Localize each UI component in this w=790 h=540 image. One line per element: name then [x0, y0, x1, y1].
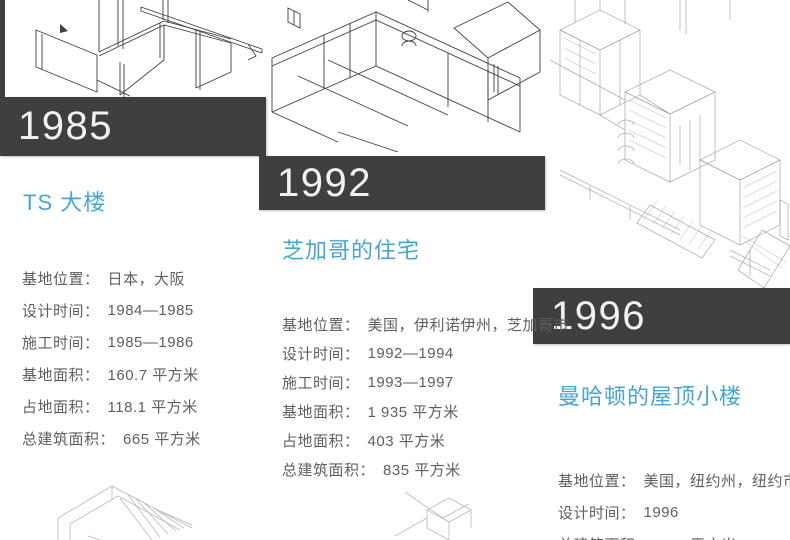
detail-label: 设计时间: [282, 343, 344, 364]
detail-label: 基地位置: [282, 314, 344, 335]
detail-value: 160.7 平方米: [108, 364, 199, 385]
detail-value: 403 平方米: [368, 430, 446, 451]
year-label: 1992: [259, 156, 545, 210]
detail-label: 设计时间: [22, 300, 84, 321]
detail-row: 设计时间：1984—1985: [22, 294, 201, 326]
detail-colon: ：: [344, 314, 360, 335]
detail-row: 设计时间：1992—1994: [282, 339, 569, 368]
detail-row: 施工时间：1985—1986: [22, 326, 201, 358]
detail-colon: ：: [84, 300, 100, 321]
detail-value: 665 平方米: [123, 428, 201, 449]
project-title-ts-building: TS 大楼: [23, 185, 106, 217]
ts-building-axonometric-drawing: [0, 0, 270, 97]
partial-house-axonometric-drawing: [365, 488, 490, 540]
partial-roof-axonometric-drawing: [40, 480, 210, 540]
detail-row: 设计时间：1996: [558, 496, 790, 528]
detail-colon: ：: [344, 430, 360, 451]
book-page: 1985 1992 1996 TS 大楼 芝加哥的住宅 曼哈顿的屋顶小楼 基地位…: [0, 0, 790, 540]
detail-label: 施工时间: [282, 372, 344, 393]
project-title-manhattan-rooftop: 曼哈顿的屋顶小楼: [558, 379, 742, 411]
detail-colon: ：: [620, 502, 636, 523]
detail-label: 总建筑面积: [282, 459, 360, 480]
year-banner-1992: 1992: [259, 156, 545, 210]
detail-value: 1984—1985: [108, 302, 194, 319]
detail-value: 美国，伊利诺伊州，芝加哥市: [368, 314, 570, 335]
detail-value: 1992—1994: [368, 345, 454, 362]
detail-value: 日本，大阪: [108, 268, 186, 289]
detail-colon: ：: [360, 459, 376, 480]
detail-value: 315 平方米: [659, 534, 737, 540]
detail-colon: ：: [84, 268, 100, 289]
chicago-house-axonometric-drawing: [258, 0, 542, 152]
detail-label: 占地面积: [282, 430, 344, 451]
detail-row: 占地面积：403 平方米: [282, 426, 569, 455]
detail-label: 基地面积: [282, 401, 344, 422]
detail-value: 1985—1986: [108, 334, 194, 351]
detail-label: 设计时间: [558, 502, 620, 523]
page-left-dark-edge: [0, 0, 5, 99]
detail-colon: ：: [636, 534, 652, 540]
detail-colon: ：: [84, 396, 100, 417]
project-details-1996: 基地位置：美国，纽约州，纽约市 设计时间：1996 总建筑面积：315 平方米: [558, 464, 790, 540]
detail-label: 占地面积: [22, 396, 84, 417]
detail-colon: ：: [100, 428, 116, 449]
manhattan-rooftop-axonometric-drawing: [530, 0, 790, 288]
detail-row: 基地位置：美国，纽约州，纽约市: [558, 464, 790, 496]
detail-colon: ：: [344, 372, 360, 393]
detail-row: 总建筑面积：835 平方米: [282, 455, 569, 484]
detail-label: 总建筑面积: [558, 534, 636, 540]
detail-colon: ：: [84, 364, 100, 385]
detail-row-clipped: 总建筑面积：315 平方米: [558, 528, 790, 540]
detail-row: 基地位置：日本，大阪: [22, 262, 201, 294]
detail-label: 施工时间: [22, 332, 84, 353]
detail-label: 总建筑面积: [22, 428, 100, 449]
detail-value: 118.1 平方米: [108, 396, 198, 417]
detail-row: 占地面积：118.1 平方米: [22, 390, 201, 422]
detail-value: 1 935 平方米: [368, 401, 459, 422]
detail-row: 基地面积：160.7 平方米: [22, 358, 201, 390]
project-details-1992: 基地位置：美国，伊利诺伊州，芝加哥市 设计时间：1992—1994 施工时间：1…: [282, 310, 569, 484]
project-details-1985: 基地位置：日本，大阪 设计时间：1984—1985 施工时间：1985—1986…: [22, 262, 201, 454]
detail-colon: ：: [620, 470, 636, 491]
year-banner-1985: 1985: [0, 97, 266, 156]
detail-row: 基地面积：1 935 平方米: [282, 397, 569, 426]
detail-row: 基地位置：美国，伊利诺伊州，芝加哥市: [282, 310, 569, 339]
detail-label: 基地面积: [22, 364, 84, 385]
project-title-chicago-house: 芝加哥的住宅: [282, 233, 420, 265]
year-label: 1996: [533, 288, 790, 344]
detail-row: 施工时间：1993—1997: [282, 368, 569, 397]
detail-value: 1993—1997: [368, 374, 454, 391]
detail-value: 835 平方米: [383, 459, 461, 480]
year-banner-1996: 1996: [533, 288, 790, 344]
detail-row: 总建筑面积：665 平方米: [22, 422, 201, 454]
detail-label: 基地位置: [558, 470, 620, 491]
detail-value: 美国，纽约州，纽约市: [644, 470, 790, 491]
detail-colon: ：: [84, 332, 100, 353]
detail-colon: ：: [344, 401, 360, 422]
detail-value: 1996: [644, 504, 679, 521]
year-label: 1985: [0, 97, 266, 156]
detail-label: 基地位置: [22, 268, 84, 289]
detail-colon: ：: [344, 343, 360, 364]
